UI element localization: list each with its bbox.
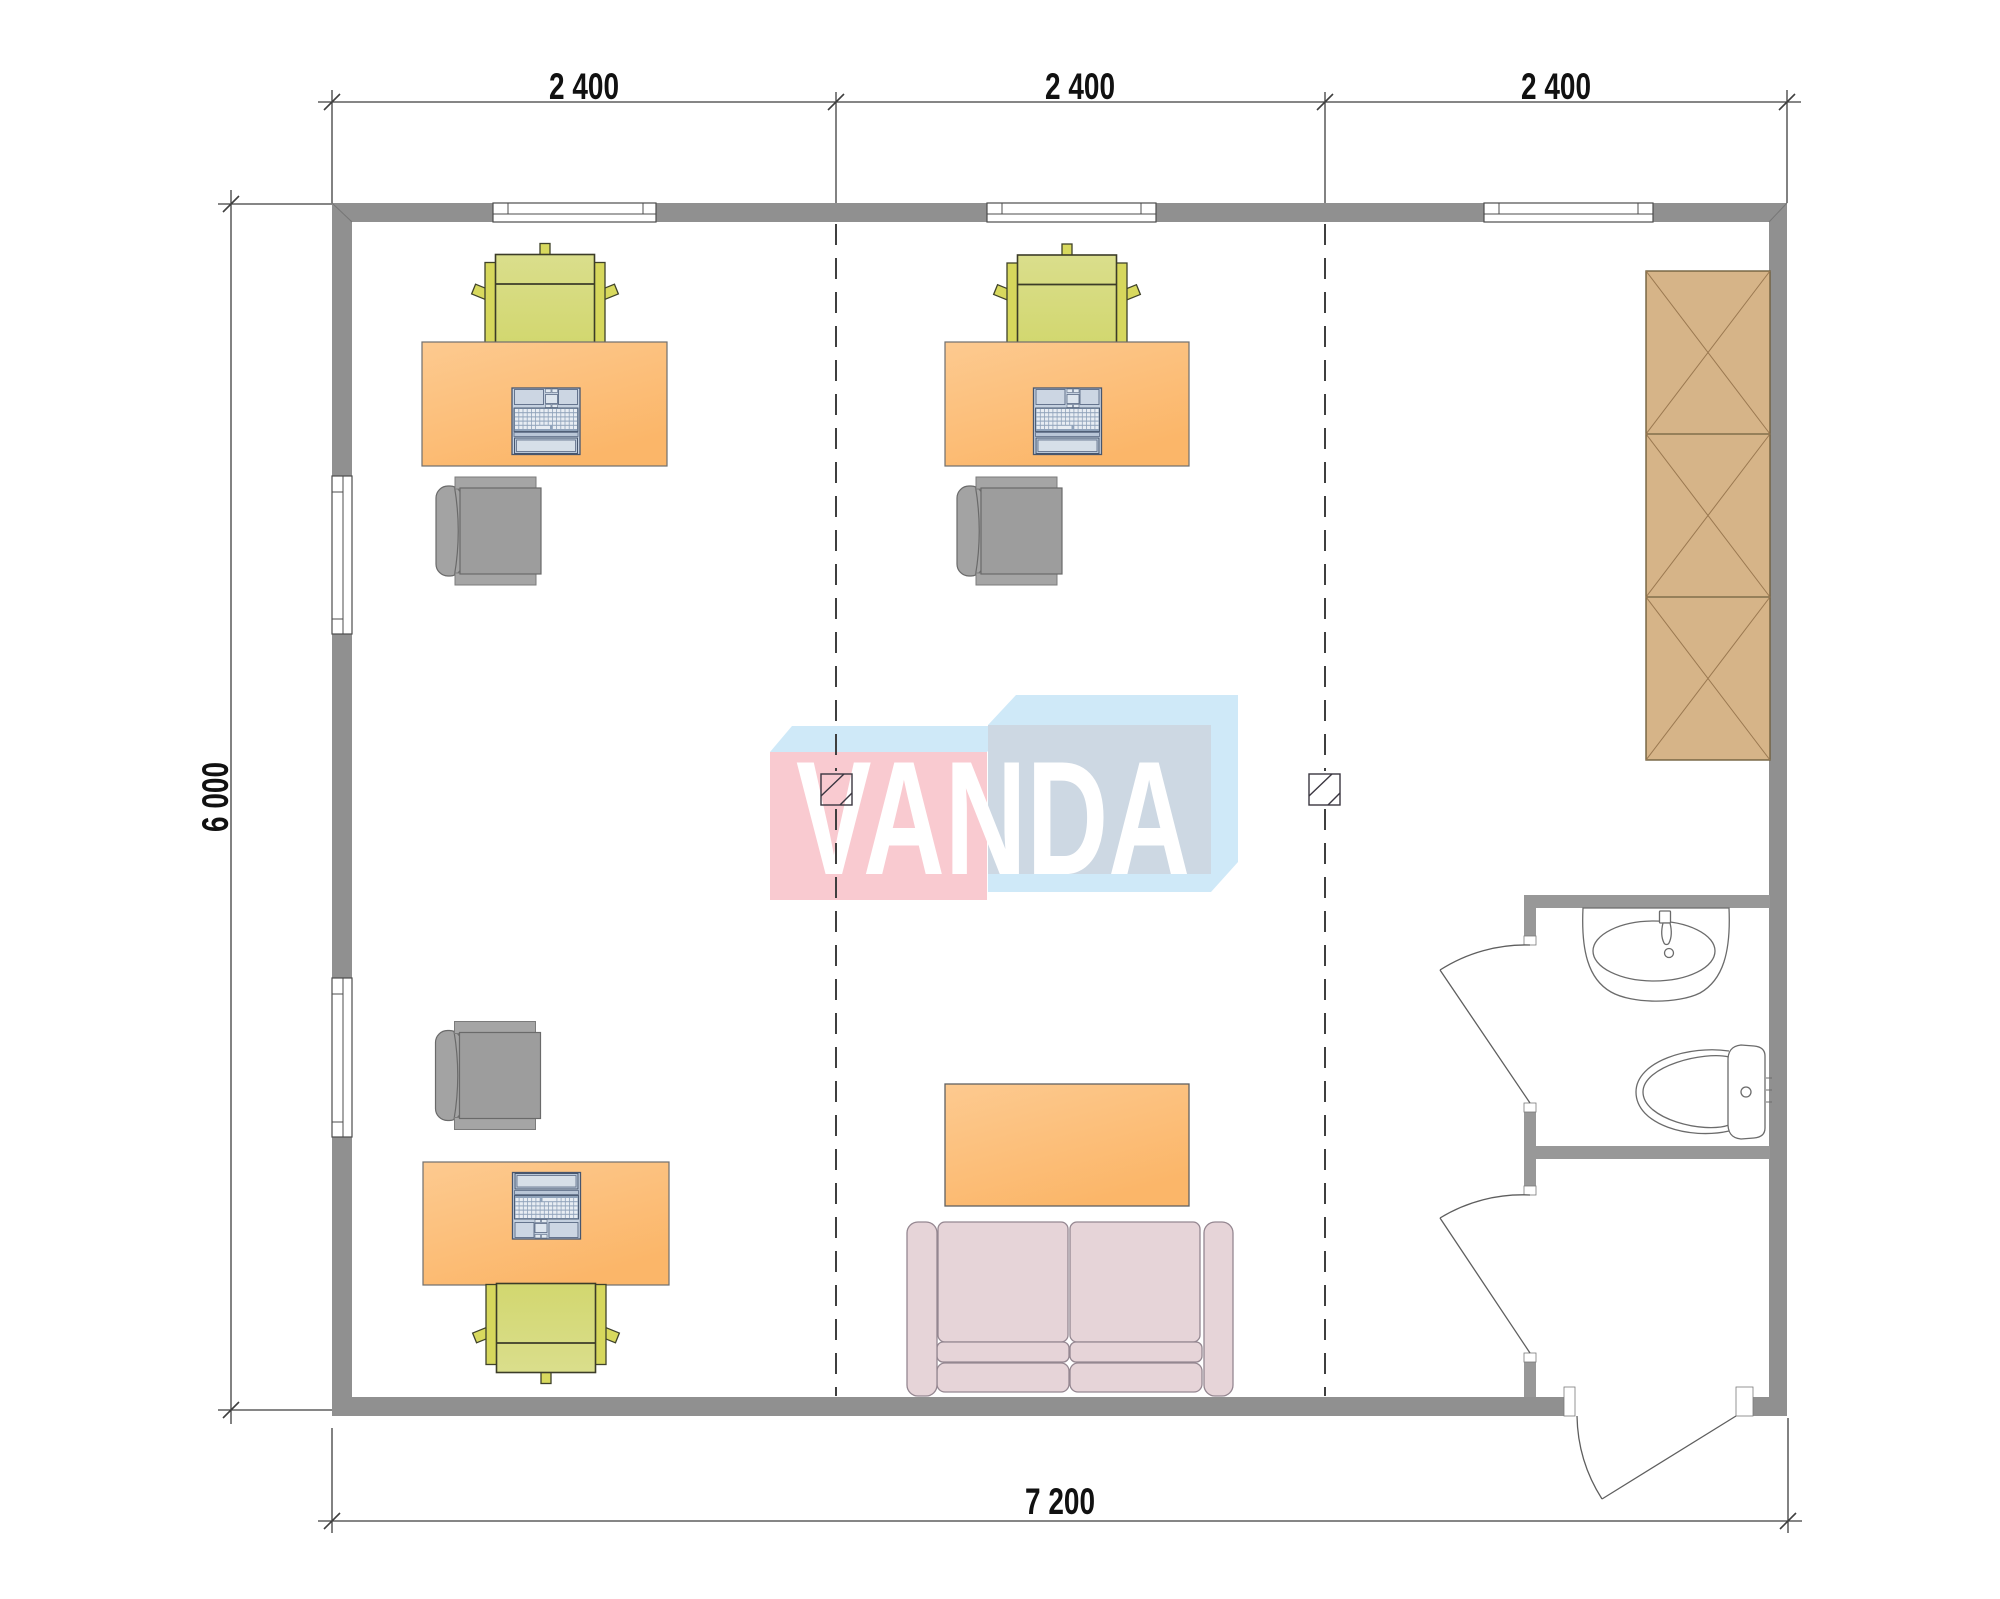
- svg-text:VANDA: VANDA: [796, 728, 1190, 909]
- svg-text:2 400: 2 400: [1045, 66, 1115, 107]
- svg-text:2 400: 2 400: [549, 66, 619, 107]
- svg-text:7 200: 7 200: [1025, 1481, 1095, 1522]
- svg-text:6 000: 6 000: [195, 762, 236, 832]
- svg-text:2 400: 2 400: [1521, 66, 1591, 107]
